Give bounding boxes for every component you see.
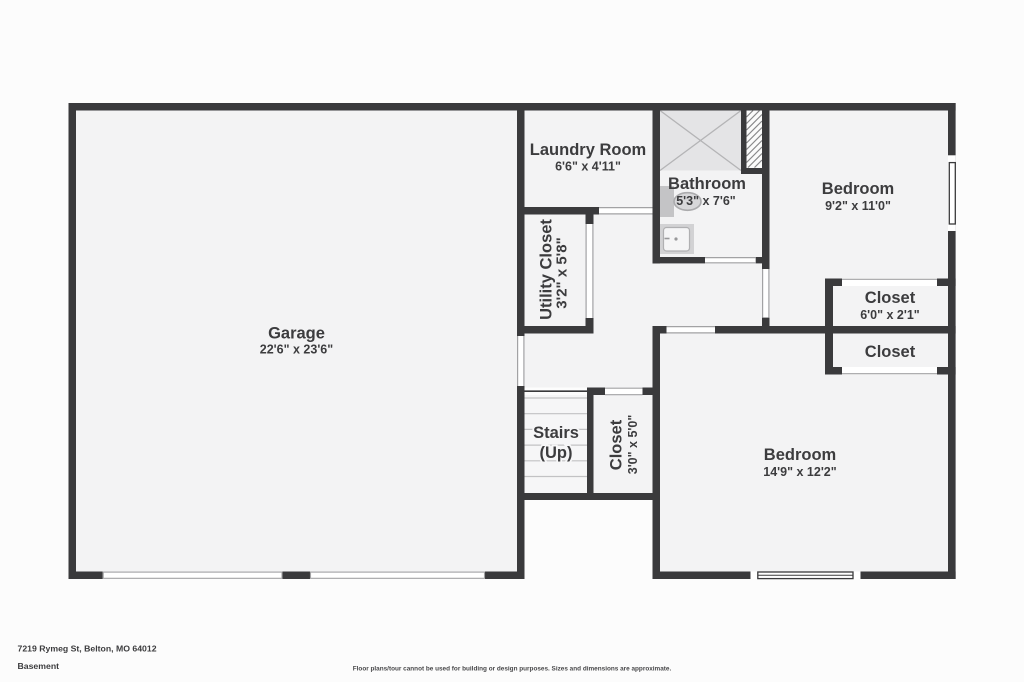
svg-text:Bedroom: Bedroom (764, 446, 836, 464)
svg-text:Bathroom: Bathroom (668, 175, 746, 193)
svg-text:3'2" x 5'8": 3'2" x 5'8" (554, 237, 571, 308)
svg-text:7219 Rymeg St, Belton, MO 6401: 7219 Rymeg St, Belton, MO 64012 (18, 644, 157, 654)
svg-text:Closet: Closet (865, 343, 916, 361)
svg-text:22'6" x 23'6": 22'6" x 23'6" (260, 343, 333, 357)
svg-text:9'2" x 11'0": 9'2" x 11'0" (825, 199, 891, 213)
svg-text:6'6" x 4'11": 6'6" x 4'11" (555, 160, 621, 174)
svg-text:14'9" x 12'2": 14'9" x 12'2" (763, 465, 836, 479)
svg-text:Basement: Basement (18, 661, 60, 671)
svg-text:Stairs: Stairs (533, 424, 579, 442)
svg-text:Closet: Closet (608, 419, 626, 470)
svg-text:Garage: Garage (268, 325, 325, 343)
svg-text:3'0" x 5'0": 3'0" x 5'0" (626, 415, 640, 475)
svg-text:6'0" x 2'1": 6'0" x 2'1" (860, 308, 920, 322)
svg-text:Bedroom: Bedroom (822, 180, 894, 198)
svg-text:5'3" x 7'6": 5'3" x 7'6" (676, 194, 736, 208)
svg-text:Closet: Closet (865, 289, 916, 307)
svg-text:(Up): (Up) (540, 444, 573, 462)
svg-text:Floor plans/tour cannot be use: Floor plans/tour cannot be used for buil… (353, 666, 672, 673)
svg-text:Laundry Room: Laundry Room (530, 141, 646, 159)
